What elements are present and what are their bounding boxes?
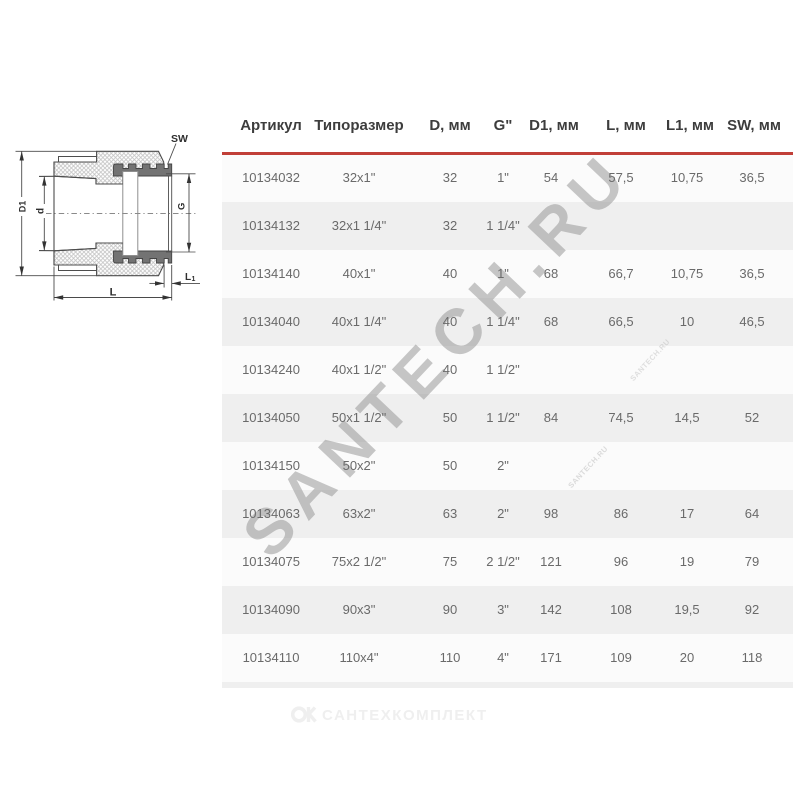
svg-text:G: G <box>177 203 188 210</box>
svg-text:L: L <box>185 272 191 283</box>
svg-text:d: d <box>36 208 47 214</box>
svg-text:D1: D1 <box>17 201 27 213</box>
svg-text:1: 1 <box>192 276 196 283</box>
svg-text:L: L <box>110 287 117 299</box>
svg-text:SW: SW <box>171 133 188 145</box>
